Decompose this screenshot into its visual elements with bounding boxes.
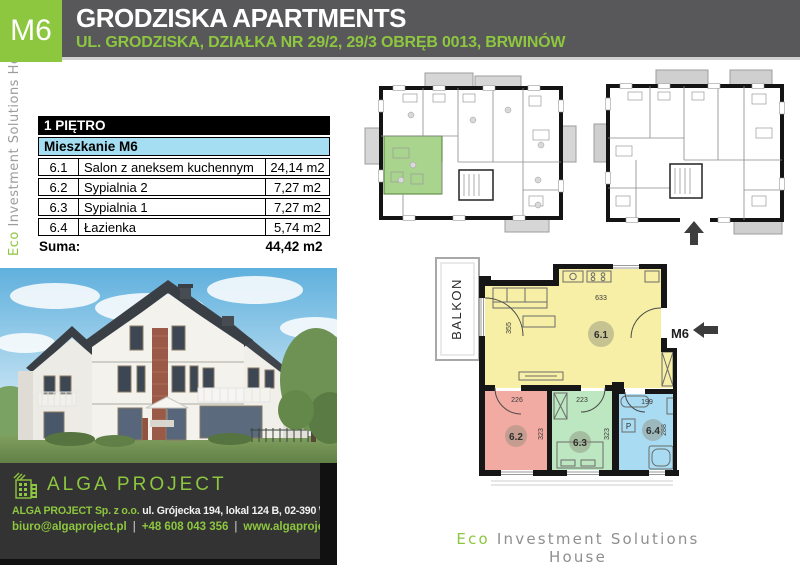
room-number-cell: 6.2	[39, 179, 79, 195]
building-render	[0, 268, 337, 468]
unit-header: Mieszkanie M6	[38, 137, 330, 156]
floor-header: 1 PIĘTRO	[38, 116, 330, 135]
room-name-cell: Łazienka	[79, 219, 265, 235]
table-row: 6.2 Sypialnia 2 7,27 m2	[38, 178, 330, 196]
room-number-cell: 6.4	[39, 219, 79, 235]
page-subtitle: UL. GRODZISKA, DZIAŁKA NR 29/2, 29/3 OBR…	[76, 33, 790, 53]
floor-plan-level1-thumbnail	[363, 70, 578, 240]
table-row: 6.3 Sypialnia 1 7,27 m2	[38, 198, 330, 216]
alga-logo-text: ALGA PROJECT	[47, 474, 227, 496]
page-title: GRODZISKA APARTMENTS	[76, 4, 790, 33]
website-link[interactable]: www.algaproject.pl	[243, 521, 337, 533]
svg-text:6.4: 6.4	[646, 426, 660, 437]
washer-label: P	[626, 422, 631, 431]
svg-text:323: 323	[604, 428, 611, 440]
phone-number: +48 608 043 356	[142, 521, 229, 533]
separator: |	[228, 521, 243, 533]
contact-address-line: ALGA PROJECT Sp. z o.o. ul. Grójecka 194…	[12, 505, 320, 517]
unit-entrance-arrow-icon	[693, 322, 718, 338]
contact-block: ALGA PROJECT ALGA PROJECT Sp. z o.o. ul.…	[0, 463, 337, 565]
room-salon-fill	[485, 269, 673, 388]
brand-eco: Eco	[456, 530, 490, 548]
table-row: 6.1 Salon z aneksem kuchennym 24,14 m2	[38, 158, 330, 176]
room-area-cell: 7,27 m2	[265, 179, 329, 195]
unit-entrance-label: M6	[671, 326, 689, 341]
room-area-cell: 5,74 m2	[265, 219, 329, 235]
svg-text:226: 226	[511, 397, 523, 404]
brand-eco: Eco	[7, 231, 22, 256]
unit-plan-m6: BALKON P	[433, 252, 723, 492]
entrance-arrow-icon	[684, 221, 704, 245]
unit-badge-label: M6	[10, 14, 52, 48]
room-area-cell: 7,27 m2	[265, 199, 329, 215]
unit-badge: M6	[0, 0, 62, 62]
building-outline	[608, 86, 782, 220]
room-name-cell: Sypialnia 2	[79, 179, 265, 195]
svg-text:6.3: 6.3	[573, 438, 587, 449]
table-total-row: Suma: 44,42 m2	[38, 239, 330, 254]
brand-rest: Investment Solutions House	[490, 530, 700, 565]
svg-text:199: 199	[641, 399, 653, 406]
company-address: ul. Grójecka 194, lokal 124 B, 02-390 Wa…	[142, 505, 337, 517]
total-value: 44,42 m2	[258, 239, 330, 254]
area-table: 1 PIĘTRO Mieszkanie M6 6.1 Salon z aneks…	[38, 116, 330, 254]
alga-logo-icon	[12, 470, 40, 500]
room-name-cell: Salon z aneksem kuchennym	[79, 159, 265, 175]
svg-text:223: 223	[576, 397, 588, 404]
floor-plan-ground-thumbnail	[592, 68, 798, 245]
room-area-cell: 24,14 m2	[265, 159, 329, 175]
separator: |	[127, 521, 142, 533]
total-label: Suma:	[39, 239, 80, 254]
table-row: 6.4 Łazienka 5,74 m2	[38, 218, 330, 236]
room-number-cell: 6.3	[39, 199, 79, 215]
svg-text:6.2: 6.2	[509, 432, 523, 443]
entrance-recess	[680, 210, 710, 222]
svg-text:6.1: 6.1	[594, 330, 608, 341]
svg-text:633: 633	[595, 295, 607, 302]
alga-logo: ALGA PROJECT	[12, 470, 320, 500]
svg-text:323: 323	[538, 428, 545, 440]
email-link[interactable]: biuro@algaproject.pl	[12, 521, 127, 533]
room-number-cell: 6.1	[39, 159, 79, 175]
vertical-brand: Eco Investment Solutions House	[7, 31, 22, 256]
contact-links-line: biuro@algaproject.pl|+48 608 043 356|www…	[12, 521, 320, 533]
room-name-cell: Sypialnia 1	[79, 199, 265, 215]
company-name: ALGA PROJECT Sp. z o.o.	[12, 505, 139, 517]
svg-text:355: 355	[506, 322, 513, 334]
balcony-label: BALKON	[449, 278, 464, 340]
footer-brand: Eco Investment Solutions House	[430, 530, 726, 565]
header-bar: GRODZISKA APARTMENTS UL. GRODZISKA, DZIA…	[62, 0, 800, 57]
page: M6 GRODZISKA APARTMENTS UL. GRODZISKA, D…	[0, 0, 800, 565]
